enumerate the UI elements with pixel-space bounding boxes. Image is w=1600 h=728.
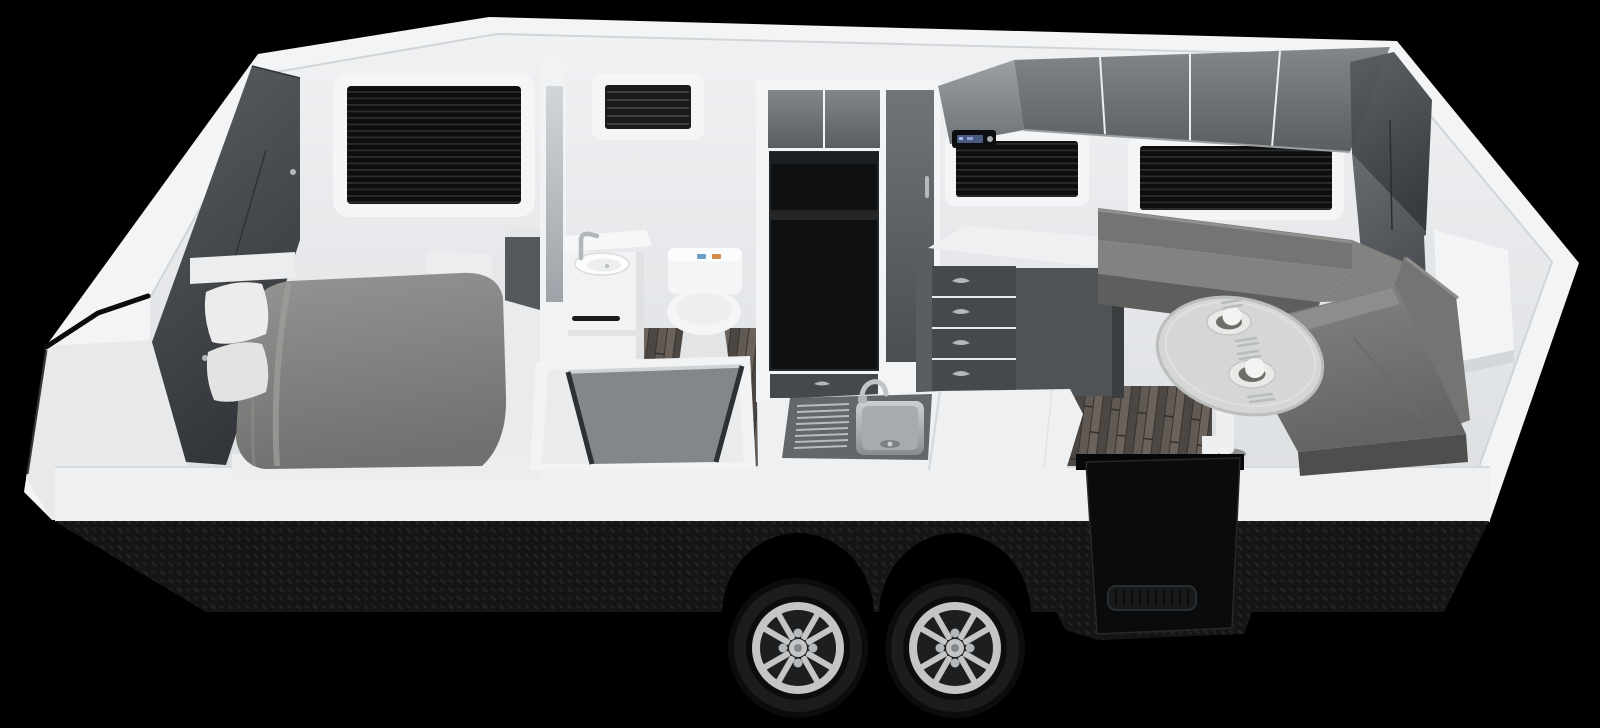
wheel-front <box>728 578 868 718</box>
shower-glass <box>568 366 742 464</box>
wardrobe-handle <box>290 169 296 175</box>
stereo-radio <box>952 130 996 148</box>
wheel-rear <box>885 578 1025 718</box>
bed <box>232 273 540 480</box>
towel-rail <box>572 316 620 321</box>
flush-button-blue <box>697 254 706 259</box>
fridge-tower <box>756 80 940 402</box>
mirror <box>546 86 563 302</box>
kitchen-bench <box>757 382 1083 520</box>
flush-button-orange <box>712 254 721 259</box>
step-grille <box>1108 586 1196 610</box>
kitchen-drawers <box>932 266 1016 392</box>
caravan-cutaway-render <box>0 0 1600 728</box>
bedroom-window-blind <box>347 86 521 204</box>
fridge-recess <box>770 152 878 370</box>
shower-cubicle <box>530 356 756 470</box>
entry-step-panel <box>1076 454 1244 634</box>
render-canvas <box>0 0 1600 728</box>
